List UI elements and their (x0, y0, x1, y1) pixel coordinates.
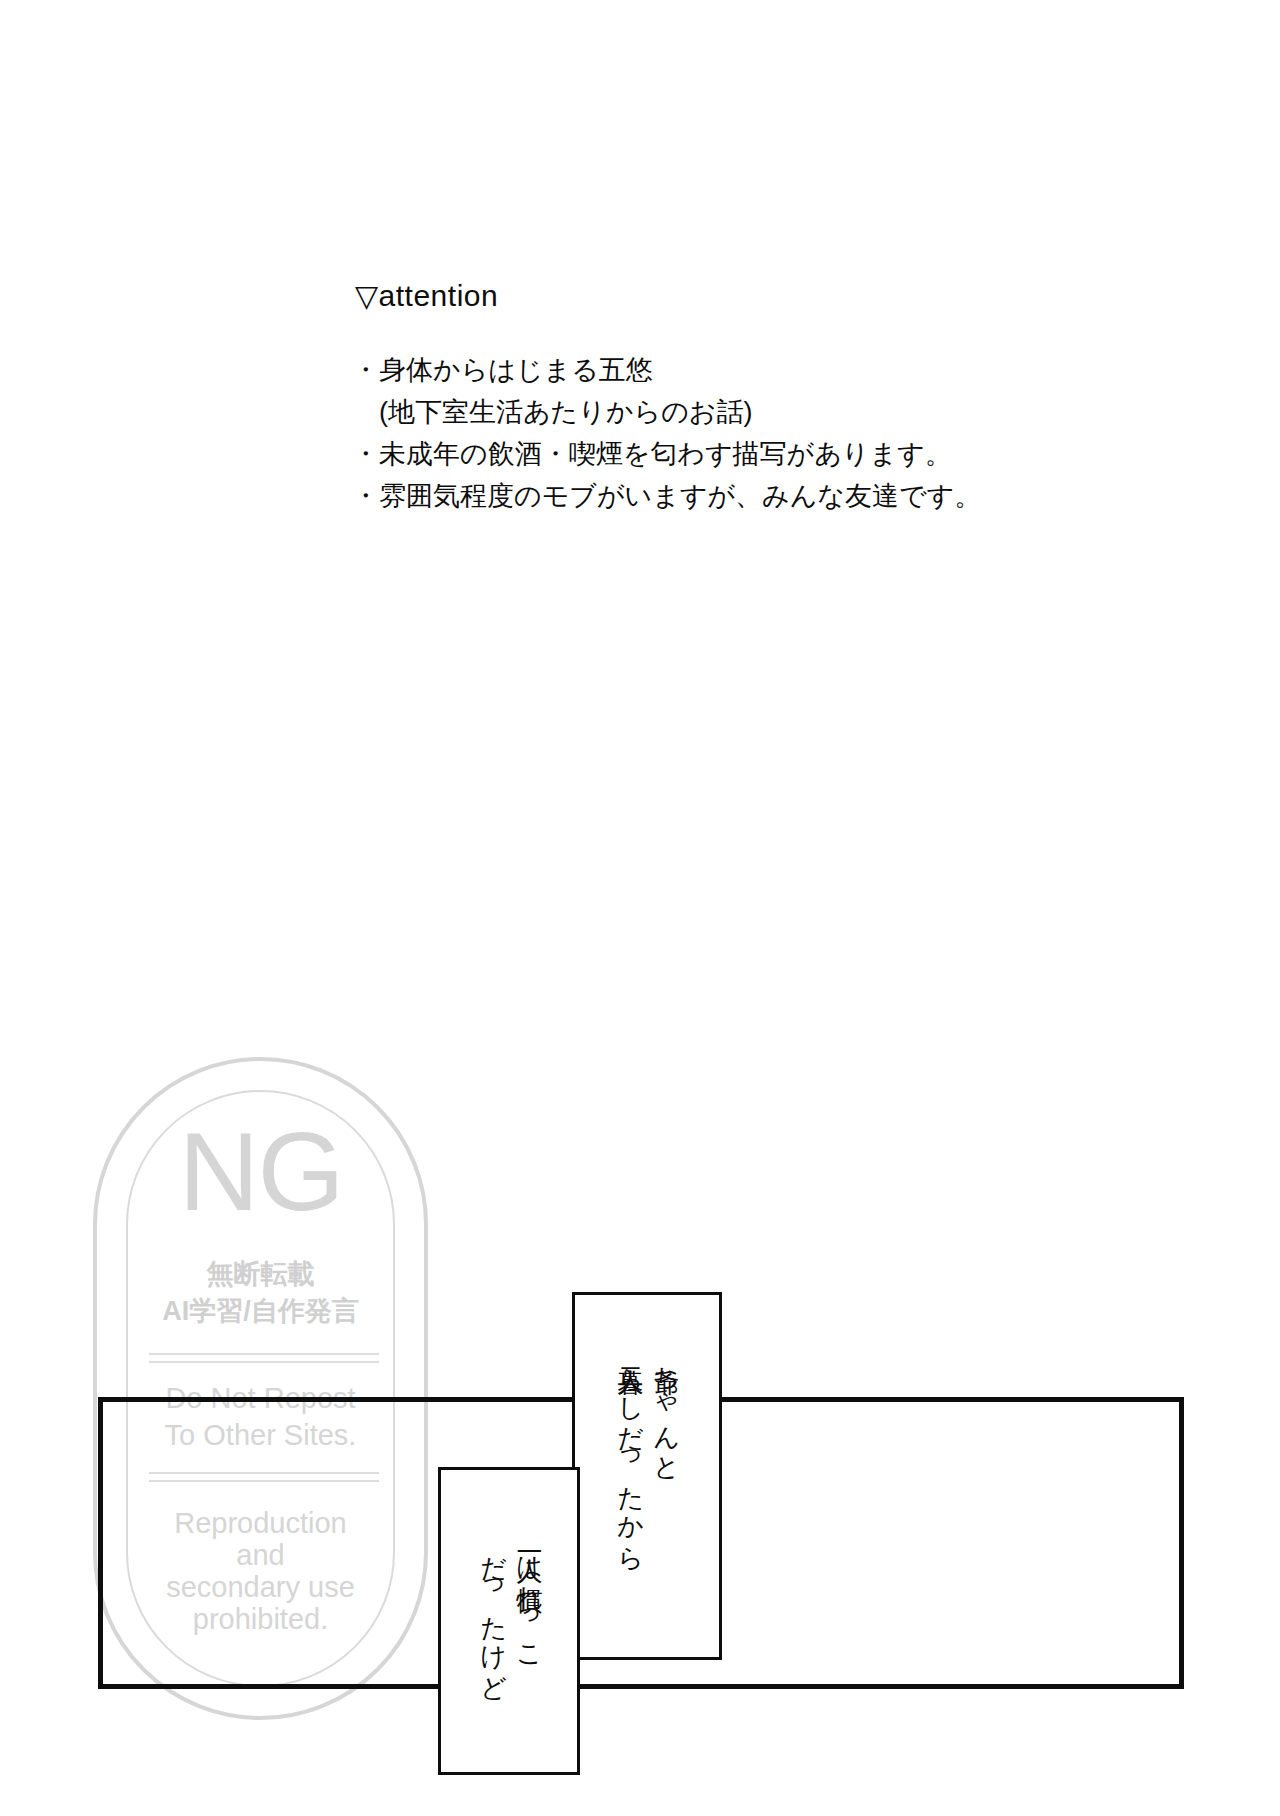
watermark-ja-no-ai: AI学習/自作発言 (97, 1295, 424, 1327)
speech-bubble-right: 爺ちゃんと 二人暮らしだったから (572, 1292, 722, 1660)
speech-text-used-to-alone: 一人は慣れっこ だったけど (441, 1470, 577, 1772)
divider-rule (149, 1361, 379, 1363)
watermark-divider-top (149, 1353, 379, 1363)
speech-text-grandpa: 爺ちゃんと 二人暮らしだったから (575, 1295, 719, 1657)
attention-heading: ▽attention (355, 281, 498, 311)
watermark-ng-label: NG (97, 1116, 424, 1228)
attention-note-pairing: ・身体からはじまる五悠 (352, 349, 981, 391)
attention-note-setting: (地下室生活あたりからのお話) (352, 391, 981, 433)
watermark-ja-no-repost: 無断転載 (97, 1258, 424, 1290)
manga-page: ▽attention ・身体からはじまる五悠 (地下室生活あたりからのお話) ・… (0, 0, 1280, 1816)
speech-bubble-left: 一人は慣れっこ だったけど (438, 1467, 580, 1775)
attention-note-content-warning: ・未成年の飲酒・喫煙を匂わす描写があります。 (352, 433, 981, 475)
divider-rule (149, 1353, 379, 1355)
attention-notes: ・身体からはじまる五悠 (地下室生活あたりからのお話) ・未成年の飲酒・喫煙を匂… (352, 349, 981, 517)
attention-note-mobs: ・雰囲気程度のモブがいますが、みんな友達です。 (352, 475, 981, 517)
